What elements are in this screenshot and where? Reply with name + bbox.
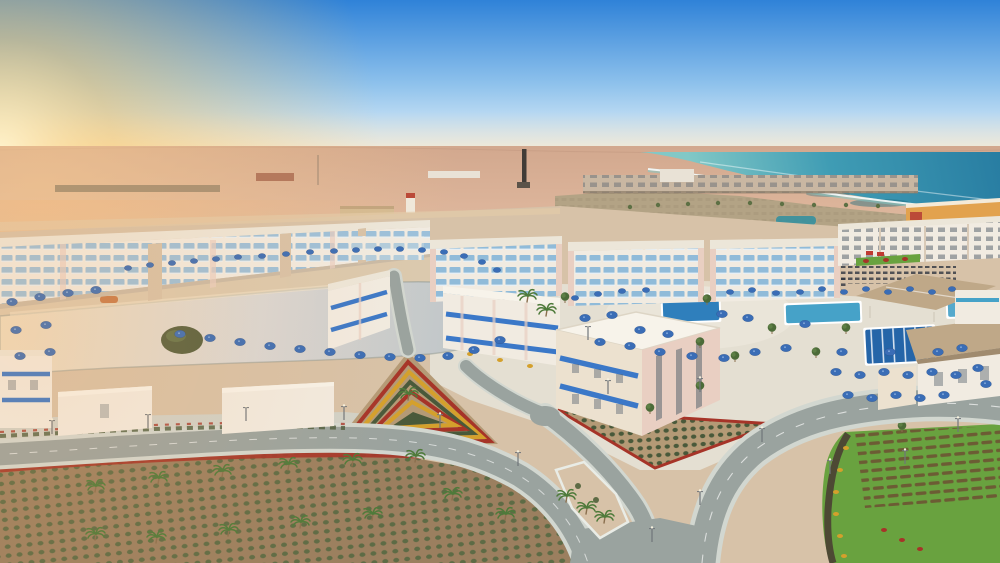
lawn-planting-rows [855, 426, 1000, 508]
parasol [973, 364, 984, 372]
distant-white-row [428, 171, 480, 178]
parasol [831, 368, 842, 376]
pink-pier [698, 248, 704, 302]
pink-pier [710, 249, 716, 302]
parasol [743, 314, 754, 322]
parasol [957, 344, 968, 352]
distant-tree-mass [55, 185, 220, 192]
parasol [796, 289, 804, 294]
white-shore-building [660, 169, 694, 182]
parasol [781, 344, 792, 352]
red-roof-hut [910, 212, 922, 220]
parasol [927, 368, 938, 376]
parasol [939, 391, 950, 399]
parasol [915, 394, 926, 402]
slit-window [656, 354, 662, 421]
scene-canvas [0, 0, 1000, 563]
parasol [948, 286, 956, 291]
teal-awning [956, 298, 999, 302]
parasol [717, 310, 728, 318]
parasol [772, 290, 780, 295]
slit-window [676, 348, 682, 415]
parasol [818, 286, 826, 291]
rect-pool-aqua [786, 303, 861, 324]
chimney-base [517, 182, 530, 188]
yellow-bush [841, 554, 847, 558]
red-bush [899, 538, 905, 542]
parasol [800, 320, 811, 328]
parasol [855, 371, 866, 379]
parasol [884, 289, 892, 294]
parasol [981, 380, 992, 388]
parasol [891, 391, 902, 399]
parasol [862, 286, 870, 291]
slit-window [696, 342, 702, 409]
walls [955, 290, 1000, 324]
parasol [951, 371, 962, 379]
distant-red-buildings [256, 173, 294, 181]
sunset-wash [0, 200, 620, 563]
red-bush [881, 528, 887, 532]
industrial-chimney [522, 149, 527, 186]
parasol [726, 289, 734, 294]
parasol [687, 352, 698, 360]
parasol [750, 348, 761, 356]
right-edge-building [955, 290, 1000, 324]
right-lawn [822, 421, 1000, 563]
red-car [877, 252, 884, 256]
parasol [748, 287, 756, 292]
parasol [933, 348, 944, 356]
yellow-bush [837, 534, 843, 538]
parasol [867, 394, 878, 402]
parasol [843, 391, 854, 399]
construction-base [583, 191, 918, 194]
parasol [642, 287, 650, 292]
parasol [879, 368, 890, 376]
parasol [625, 342, 636, 350]
yellow-bush [833, 490, 839, 494]
resort-aerial-photo [0, 0, 1000, 563]
parasol [837, 348, 848, 356]
parasol [885, 348, 896, 356]
red-car [866, 251, 873, 255]
parasol [840, 289, 848, 294]
parasol [655, 348, 666, 356]
red-bush [863, 259, 869, 263]
red-bush [917, 547, 923, 551]
parasol [663, 330, 674, 338]
red-bush [883, 258, 889, 262]
yellow-bush [837, 468, 843, 472]
construction-windows [583, 175, 918, 193]
service-tower-top [406, 193, 415, 198]
parasol [906, 286, 914, 291]
red-bush [902, 257, 908, 261]
parasol [719, 354, 730, 362]
yellow-bush [843, 446, 849, 450]
yellow-bush [833, 512, 839, 516]
parasol [903, 371, 914, 379]
parasol [928, 289, 936, 294]
parasol [635, 326, 646, 334]
